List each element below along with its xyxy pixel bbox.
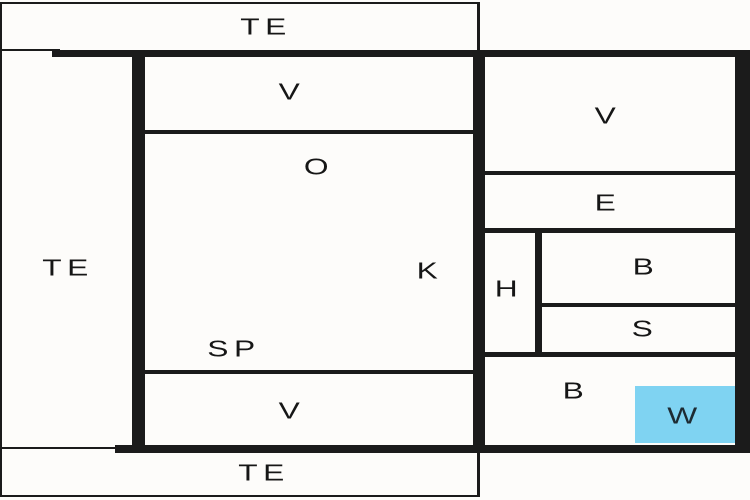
room-label-te-top: TE	[240, 16, 292, 39]
room-label-e: E	[595, 192, 622, 215]
room-label-w: W	[667, 404, 702, 427]
room-label-h: H	[495, 278, 523, 301]
line-bottom-band-top	[0, 447, 118, 449]
line-v-o-separator	[145, 130, 473, 134]
line-bottom-band-right	[477, 452, 480, 497]
line-top-band-top	[0, 2, 480, 4]
floor-plan: W TE TE TE V O K SP V V E H B S B	[0, 0, 750, 500]
line-e-bottom	[485, 228, 735, 233]
room-label-v-lower-middle: V	[279, 400, 306, 423]
room-label-te-left: TE	[42, 257, 94, 280]
room-label-s: S	[632, 318, 659, 341]
line-bottom-band-bottom	[0, 495, 480, 497]
line-b-s-separator	[542, 303, 735, 307]
line-v-e-separator	[485, 171, 735, 175]
room-label-o: O	[304, 156, 334, 179]
wall-hall-partition	[535, 233, 542, 353]
room-label-sp: SP	[207, 338, 260, 361]
room-label-b-lower: B	[563, 380, 590, 403]
room-label-te-bottom: TE	[238, 462, 290, 485]
wall-left-interior	[132, 50, 145, 452]
room-label-b-upper: B	[633, 256, 660, 279]
line-sp-v-separator	[145, 370, 473, 374]
room-label-k: K	[417, 260, 444, 283]
line-s-bottom	[485, 352, 735, 357]
line-top-band-right	[477, 2, 480, 51]
room-w-highlight[interactable]: W	[635, 386, 735, 443]
room-label-v-upper-middle: V	[279, 81, 306, 104]
wall-top	[52, 50, 750, 57]
line-outer-left	[0, 2, 2, 497]
wall-center-divider	[473, 50, 485, 452]
line-top-band-bottom	[0, 49, 60, 51]
room-label-v-right: V	[595, 105, 622, 128]
wall-right-exterior	[735, 50, 750, 452]
wall-bottom	[115, 445, 750, 453]
